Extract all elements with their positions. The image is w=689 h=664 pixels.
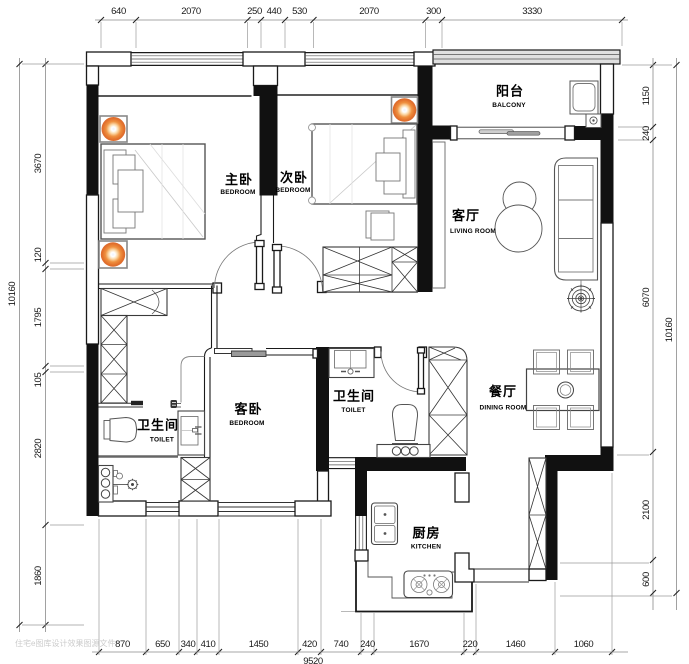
svg-text:2070: 2070	[359, 6, 379, 17]
svg-text:1060: 1060	[574, 639, 594, 650]
svg-text:2100: 2100	[641, 500, 652, 520]
svg-text:次卧: 次卧	[280, 170, 308, 185]
svg-text:1460: 1460	[506, 639, 526, 650]
svg-text:BEDROOM: BEDROOM	[229, 420, 264, 427]
svg-text:KITCHEN: KITCHEN	[411, 544, 441, 551]
svg-text:10160: 10160	[7, 282, 18, 307]
svg-text:9520: 9520	[303, 656, 323, 664]
svg-text:客卧: 客卧	[234, 402, 262, 417]
svg-text:3670: 3670	[33, 154, 44, 174]
svg-text:240: 240	[641, 126, 652, 141]
svg-text:1670: 1670	[409, 639, 429, 650]
svg-text:420: 420	[302, 639, 317, 650]
svg-text:870: 870	[115, 639, 130, 650]
svg-text:BALCONY: BALCONY	[492, 102, 526, 109]
svg-text:客厅: 客厅	[452, 208, 480, 223]
svg-text:厨房: 厨房	[412, 526, 440, 541]
svg-text:TOILET: TOILET	[150, 437, 174, 444]
svg-text:10160: 10160	[664, 318, 675, 343]
svg-text:740: 740	[334, 639, 349, 650]
svg-text:DINING ROOM: DINING ROOM	[480, 405, 527, 412]
svg-text:餐厅: 餐厅	[488, 384, 517, 399]
svg-text:340: 340	[181, 639, 196, 650]
svg-text:卫生间: 卫生间	[333, 389, 375, 404]
svg-text:TOILET: TOILET	[341, 407, 365, 414]
svg-text:2820: 2820	[33, 439, 44, 459]
svg-text:250: 250	[247, 6, 262, 17]
svg-text:600: 600	[641, 572, 652, 587]
svg-text:530: 530	[292, 6, 307, 17]
svg-text:440: 440	[267, 6, 282, 17]
svg-text:220: 220	[463, 639, 478, 650]
svg-text:BEDROOM: BEDROOM	[275, 187, 310, 194]
svg-text:阳台: 阳台	[496, 84, 524, 99]
svg-text:410: 410	[201, 639, 216, 650]
svg-text:1150: 1150	[641, 86, 652, 105]
svg-text:120: 120	[33, 248, 44, 263]
svg-text:1450: 1450	[249, 639, 269, 650]
svg-text:BEDROOM: BEDROOM	[220, 189, 255, 196]
svg-text:3330: 3330	[522, 6, 542, 17]
svg-text:1860: 1860	[33, 566, 44, 586]
svg-text:2070: 2070	[181, 6, 201, 17]
svg-text:640: 640	[111, 6, 126, 17]
svg-text:650: 650	[155, 639, 170, 650]
svg-text:主卧: 主卧	[225, 172, 253, 187]
svg-text:240: 240	[360, 639, 375, 650]
svg-text:6070: 6070	[641, 288, 652, 308]
svg-text:LIVING ROOM: LIVING ROOM	[450, 228, 496, 235]
svg-text:住宅e图库设计效果图源文件: 住宅e图库设计效果图源文件	[15, 638, 115, 648]
svg-text:卫生间: 卫生间	[137, 418, 179, 433]
svg-text:105: 105	[33, 373, 44, 388]
svg-text:1795: 1795	[33, 308, 44, 328]
svg-text:300: 300	[426, 6, 441, 17]
